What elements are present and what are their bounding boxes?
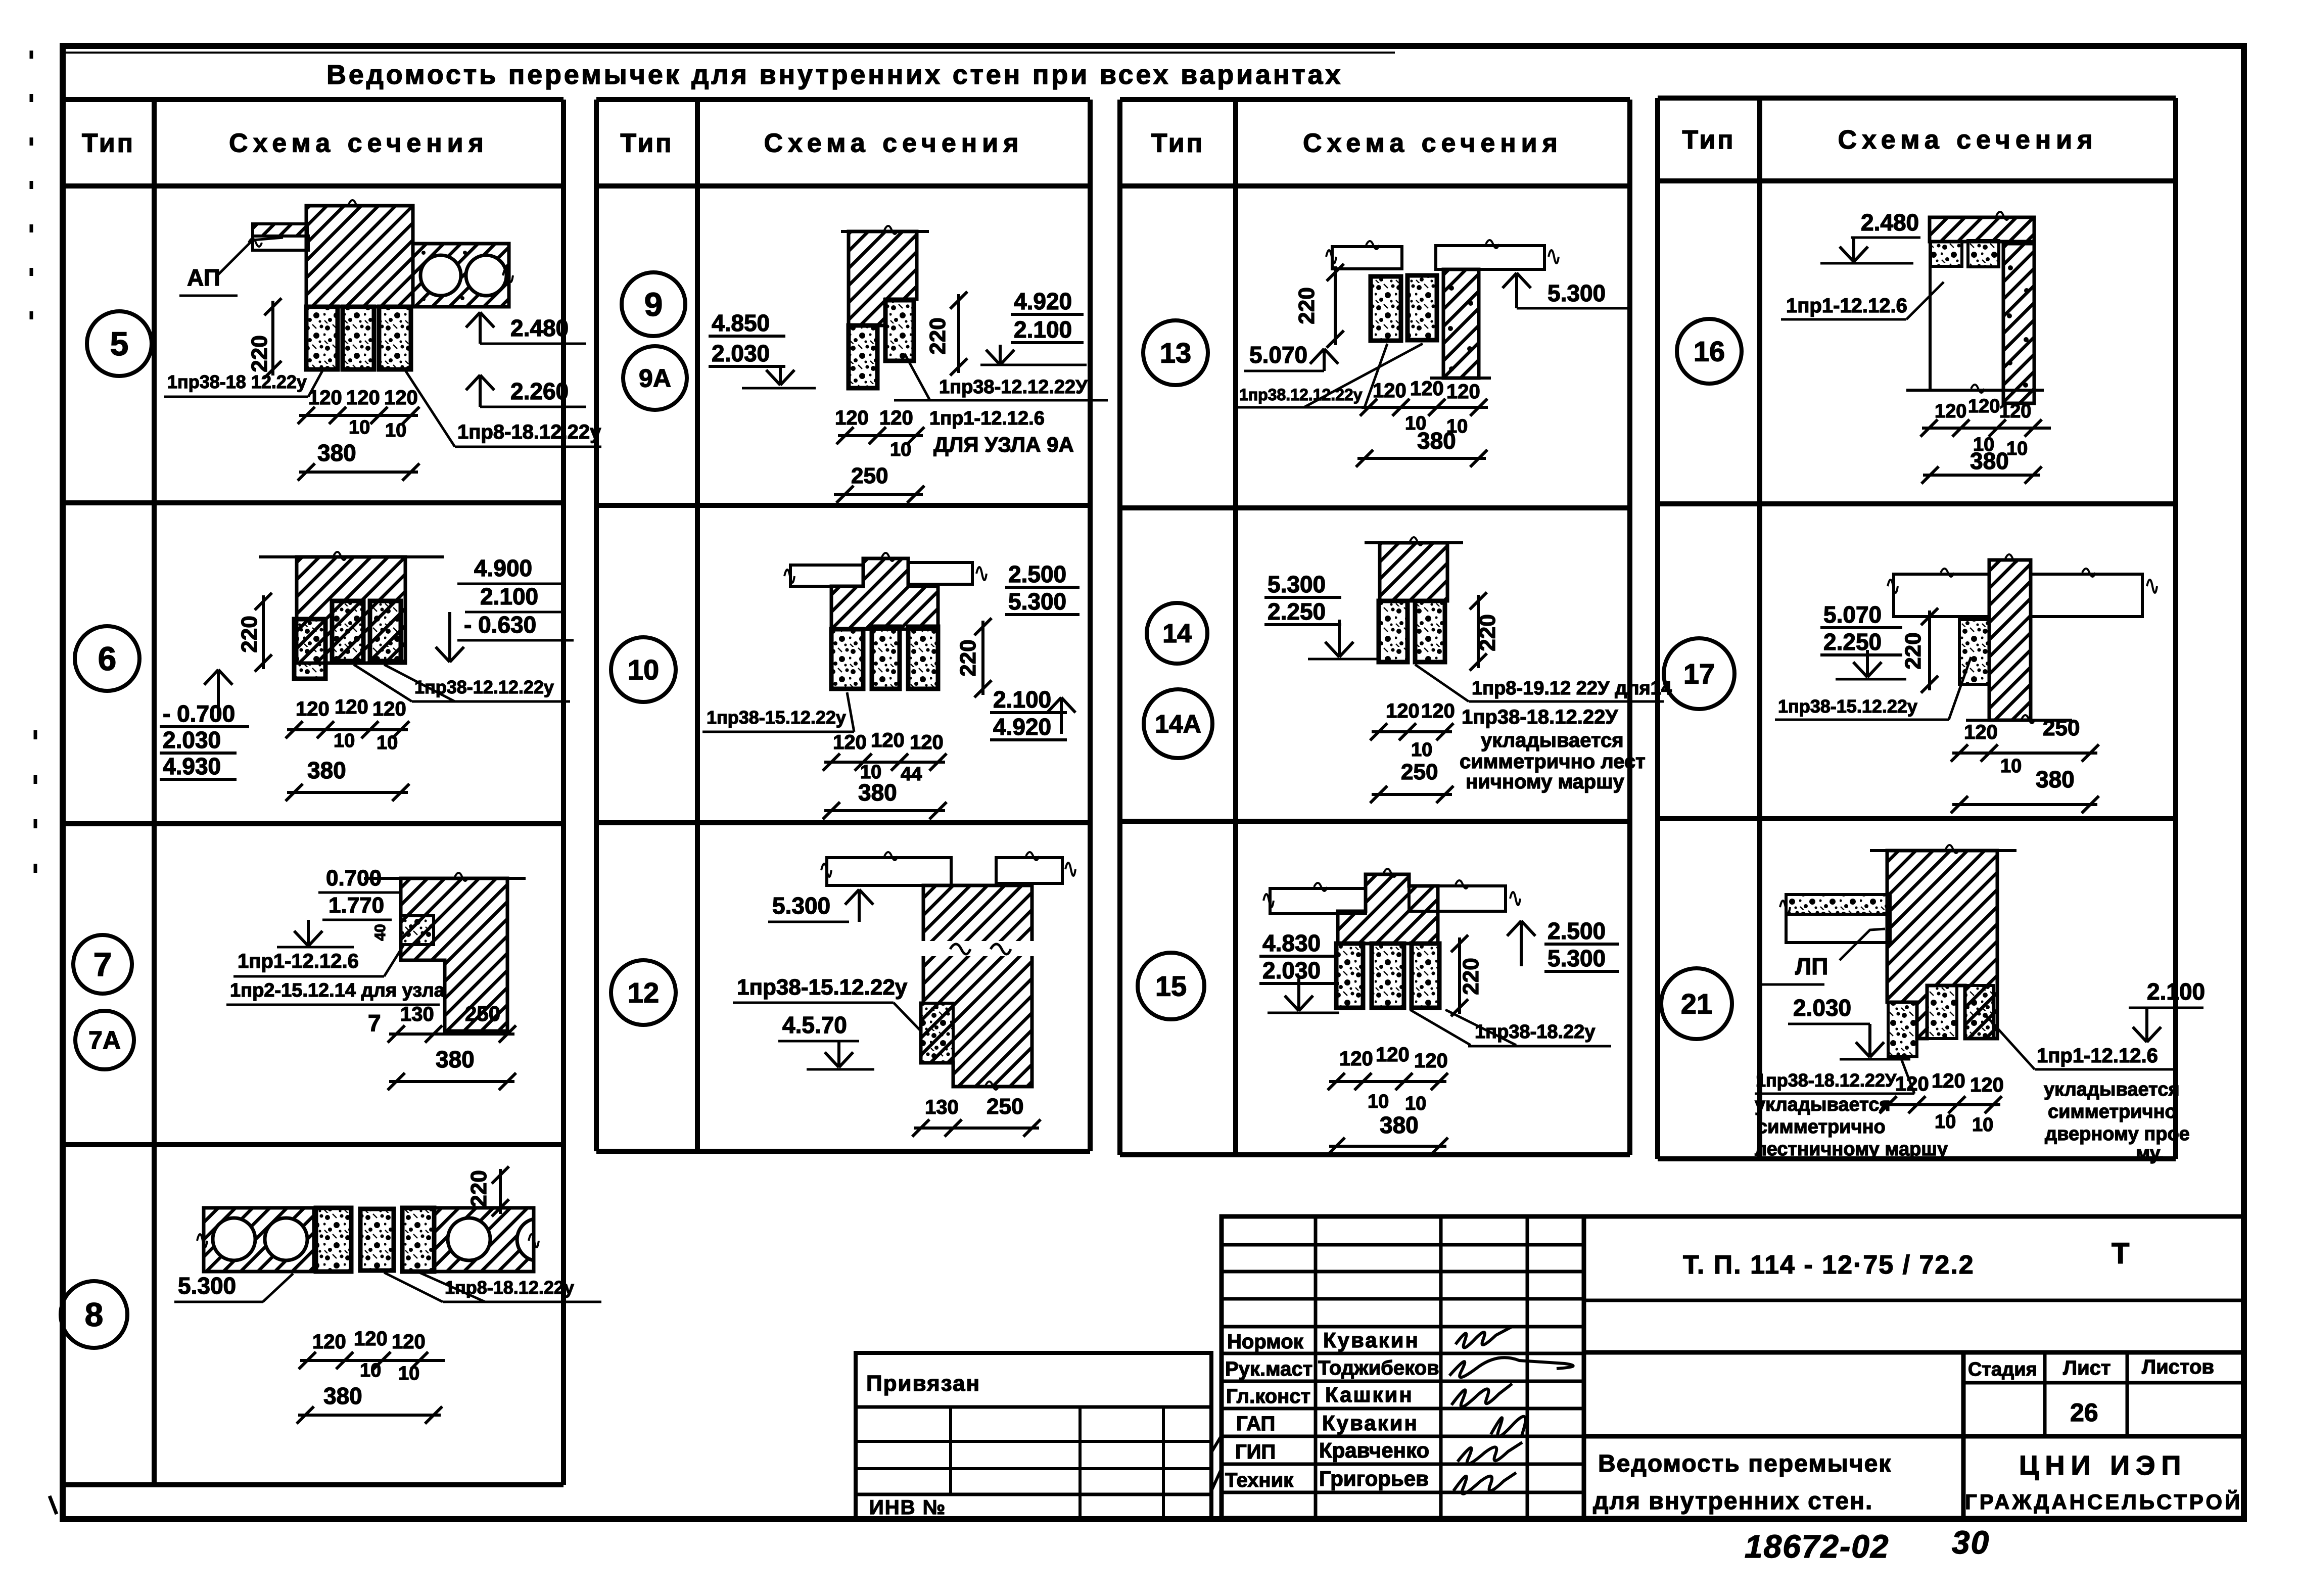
svg-text:380: 380 — [436, 1046, 475, 1072]
svg-text:2.030: 2.030 — [163, 727, 221, 753]
svg-text:120: 120 — [312, 1331, 346, 1353]
svg-text:Кувакин: Кувакин — [1322, 1411, 1419, 1435]
svg-text:укладывается: укладывается — [2044, 1079, 2180, 1100]
svg-text:120: 120 — [1339, 1048, 1373, 1070]
svg-text:10: 10 — [398, 1363, 419, 1384]
svg-text:Тип: Тип — [1682, 125, 1735, 155]
svg-text:Рук.маст: Рук.маст — [1225, 1358, 1312, 1380]
svg-text:ГАП: ГАП — [1236, 1413, 1275, 1435]
svg-text:4.930: 4.930 — [163, 753, 221, 779]
svg-text:120: 120 — [1932, 1070, 1965, 1092]
svg-text:дверному прое: дверному прое — [2045, 1123, 2190, 1145]
svg-text:220: 220 — [1459, 958, 1483, 995]
svg-text:21: 21 — [1681, 988, 1712, 1020]
svg-text:1пр1-12.12.6: 1пр1-12.12.6 — [2037, 1045, 2158, 1067]
svg-text:10: 10 — [2000, 756, 2022, 777]
svg-text:10: 10 — [349, 417, 370, 438]
svg-text:для внутренних стен.: для внутренних стен. — [1593, 1488, 1873, 1515]
svg-text:ГРАЖДАНСЕЛЬСТРОЙ: ГРАЖДАНСЕЛЬСТРОЙ — [1965, 1489, 2242, 1514]
svg-text:укладывается: укладывается — [1481, 729, 1624, 752]
svg-text:- 0.630: - 0.630 — [464, 612, 536, 638]
svg-text:2.250: 2.250 — [1823, 629, 1882, 655]
svg-text:Привязан: Привязан — [866, 1371, 980, 1396]
svg-text:1пр38.12.12.22у: 1пр38.12.12.22у — [1239, 386, 1363, 404]
svg-text:2.480: 2.480 — [510, 315, 569, 341]
svg-text:5.300: 5.300 — [178, 1273, 236, 1299]
svg-text:Гл.конст: Гл.конст — [1226, 1385, 1310, 1407]
svg-text:120: 120 — [346, 387, 380, 409]
svg-text:1пр38-18.12.22У: 1пр38-18.12.22У — [1756, 1070, 1897, 1091]
svg-text:220: 220 — [466, 1170, 491, 1207]
svg-text:лестничному маршу: лестничному маршу — [1755, 1139, 1948, 1160]
svg-text:2.030: 2.030 — [1262, 957, 1321, 983]
svg-text:5.300: 5.300 — [772, 893, 830, 919]
svg-text:2.500: 2.500 — [1547, 918, 1606, 944]
svg-text:250: 250 — [987, 1094, 1023, 1119]
svg-text:120: 120 — [879, 407, 913, 429]
svg-text:250: 250 — [465, 1002, 500, 1025]
svg-text:2.250: 2.250 — [1268, 598, 1326, 625]
svg-text:2.500: 2.500 — [1008, 561, 1066, 587]
svg-text:2.100: 2.100 — [993, 686, 1051, 713]
svg-text:1пр38-12.12.22У: 1пр38-12.12.22У — [939, 377, 1088, 398]
svg-text:5: 5 — [110, 325, 129, 362]
svg-text:380: 380 — [2036, 766, 2075, 792]
svg-text:2.100: 2.100 — [480, 583, 538, 609]
svg-text:Лист: Лист — [2063, 1357, 2111, 1379]
svg-text:380: 380 — [1380, 1112, 1419, 1138]
svg-text:120: 120 — [372, 698, 406, 720]
svg-text:симметрично: симметрично — [2048, 1101, 2177, 1122]
svg-text:120: 120 — [1999, 401, 2031, 422]
svg-text:ДЛЯ УЗЛА 9А: ДЛЯ УЗЛА 9А — [933, 433, 1074, 456]
svg-text:120: 120 — [1410, 378, 1444, 400]
svg-text:10: 10 — [2006, 438, 2028, 459]
svg-text:Т: Т — [2112, 1237, 2129, 1270]
svg-text:ЛП: ЛП — [1795, 953, 1828, 979]
svg-text:2.100: 2.100 — [2147, 978, 2205, 1005]
svg-text:10: 10 — [385, 420, 406, 441]
svg-text:120: 120 — [1376, 1044, 1410, 1066]
svg-text:10: 10 — [377, 732, 398, 754]
svg-text:10: 10 — [890, 439, 911, 460]
svg-text:Ведомость перемычек для внутр: Ведомость перемычек для внутренних стен … — [326, 60, 1343, 90]
svg-text:2.100: 2.100 — [1014, 316, 1072, 343]
svg-text:9: 9 — [644, 286, 663, 323]
svg-text:Листов: Листов — [2142, 1356, 2214, 1378]
svg-text:Схема сечения: Схема сечения — [764, 129, 1024, 158]
svg-text:220: 220 — [1294, 287, 1319, 324]
svg-text:130: 130 — [400, 1003, 434, 1025]
svg-text:- 0.700: - 0.700 — [163, 700, 235, 727]
svg-text:1.770: 1.770 — [329, 893, 384, 918]
svg-text:10: 10 — [1972, 1114, 1993, 1136]
svg-text:АП: АП — [187, 264, 220, 291]
svg-text:симметрично: симметрично — [1757, 1116, 1886, 1138]
svg-text:1пр2-15.12.14 для узла: 1пр2-15.12.14 для узла — [230, 980, 445, 1001]
svg-text:5.300: 5.300 — [1547, 280, 1606, 306]
svg-text:6: 6 — [98, 640, 117, 677]
svg-text:12: 12 — [628, 977, 659, 1009]
svg-text:ЦНИ ИЭП: ЦНИ ИЭП — [2019, 1450, 2187, 1481]
svg-text:1пр8-18.12.22у: 1пр8-18.12.22у — [457, 421, 601, 443]
svg-text:укладывается: укладывается — [1755, 1094, 1891, 1115]
svg-text:250: 250 — [1401, 760, 1438, 784]
svg-text:120: 120 — [1895, 1073, 1929, 1095]
svg-text:380: 380 — [317, 440, 356, 466]
svg-text:1пр38-18.12.22У: 1пр38-18.12.22У — [1462, 706, 1618, 728]
svg-text:120: 120 — [833, 731, 867, 754]
svg-text:120: 120 — [910, 731, 944, 754]
svg-text:симметрично лест: симметрично лест — [1460, 750, 1646, 773]
svg-text:Схема сечения: Схема сечения — [1303, 129, 1563, 158]
svg-text:120: 120 — [392, 1331, 426, 1353]
svg-text:15: 15 — [1155, 970, 1187, 1002]
svg-text:1пр8-19.12 22У для14: 1пр8-19.12 22У для14 — [1472, 678, 1672, 699]
svg-text:26: 26 — [2070, 1398, 2098, 1427]
svg-text:250: 250 — [851, 463, 888, 488]
svg-text:120: 120 — [835, 407, 869, 429]
svg-text:4.830: 4.830 — [1262, 930, 1321, 956]
svg-text:44: 44 — [901, 764, 922, 785]
svg-text:14: 14 — [1162, 619, 1192, 648]
svg-text:8: 8 — [85, 1296, 104, 1333]
svg-text:Тоджибеков: Тоджибеков — [1318, 1357, 1439, 1379]
svg-text:120: 120 — [1386, 700, 1420, 722]
svg-text:16: 16 — [1694, 336, 1725, 367]
svg-text:Григорьев: Григорьев — [1319, 1467, 1429, 1490]
svg-text:Схема сечения: Схема сечения — [1838, 125, 2098, 155]
svg-text:Тип: Тип — [82, 129, 135, 158]
svg-text:220: 220 — [247, 335, 272, 372]
svg-text:1пр38-15.12.22у: 1пр38-15.12.22у — [707, 707, 846, 728]
svg-text:Т. П. 114 - 12·75 / 72.2: Т. П. 114 - 12·75 / 72.2 — [1683, 1250, 1975, 1280]
svg-text:5.070: 5.070 — [1249, 342, 1307, 368]
svg-text:120: 120 — [1414, 1050, 1448, 1072]
svg-text:му.: му. — [2136, 1143, 2164, 1164]
svg-text:120: 120 — [308, 387, 342, 409]
svg-text:380: 380 — [1970, 448, 2009, 474]
svg-text:Кашкин: Кашкин — [1325, 1383, 1414, 1406]
svg-text:ИНВ №: ИНВ № — [869, 1496, 946, 1519]
svg-text:ГИП: ГИП — [1235, 1441, 1276, 1463]
svg-text:5.300: 5.300 — [1268, 571, 1326, 597]
svg-text:17: 17 — [1683, 658, 1715, 690]
svg-text:220: 220 — [925, 317, 950, 354]
svg-text:2.030: 2.030 — [1793, 995, 1851, 1021]
svg-text:1пр38-15.12.22у: 1пр38-15.12.22у — [1778, 696, 1917, 717]
svg-text:10: 10 — [1935, 1111, 1956, 1133]
svg-text:120: 120 — [1421, 700, 1455, 722]
svg-text:14А: 14А — [1155, 710, 1201, 738]
svg-text:5.300: 5.300 — [1008, 588, 1066, 615]
svg-text:120: 120 — [1970, 1074, 2004, 1096]
svg-text:4.920: 4.920 — [1014, 288, 1072, 314]
svg-text:380: 380 — [323, 1383, 362, 1409]
svg-text:10: 10 — [1368, 1091, 1389, 1112]
svg-text:4.5.70: 4.5.70 — [782, 1012, 847, 1038]
svg-text:Стадия: Стадия — [1968, 1359, 2037, 1380]
svg-text:380: 380 — [1417, 428, 1456, 454]
svg-text:1пр38-18.22у: 1пр38-18.22у — [1475, 1021, 1595, 1043]
svg-text:2.030: 2.030 — [712, 340, 770, 366]
svg-text:Нормок: Нормок — [1227, 1331, 1304, 1353]
svg-text:120: 120 — [1373, 380, 1406, 402]
svg-text:220: 220 — [1475, 614, 1500, 651]
svg-text:Техник: Техник — [1225, 1469, 1294, 1491]
svg-text:10: 10 — [1405, 1093, 1426, 1114]
svg-text:120: 120 — [1446, 381, 1480, 403]
svg-text:1пр1-12.12.6: 1пр1-12.12.6 — [929, 408, 1045, 429]
svg-text:9А: 9А — [639, 364, 671, 393]
svg-text:120: 120 — [296, 698, 330, 720]
svg-text:7: 7 — [368, 1010, 381, 1036]
svg-text:1пр8-18.12.22у: 1пр8-18.12.22у — [445, 1277, 574, 1298]
svg-text:380: 380 — [307, 757, 346, 783]
svg-text:7: 7 — [93, 946, 112, 983]
svg-text:120: 120 — [384, 387, 418, 409]
svg-text:1пр38-12.12.22у: 1пр38-12.12.22у — [414, 677, 554, 697]
svg-text:120: 120 — [1964, 721, 1998, 743]
svg-text:Тип: Тип — [1151, 129, 1204, 158]
svg-text:2.480: 2.480 — [1861, 209, 1919, 236]
svg-text:Кравченко: Кравченко — [1319, 1438, 1429, 1462]
svg-text:220: 220 — [956, 639, 980, 676]
svg-text:Тип: Тип — [620, 129, 673, 158]
svg-text:5.070: 5.070 — [1823, 601, 1882, 628]
svg-text:2.260: 2.260 — [510, 378, 569, 404]
svg-text:4.920: 4.920 — [993, 714, 1051, 740]
svg-text:Ведомость перемычек: Ведомость перемычек — [1598, 1450, 1892, 1477]
svg-text:1пр1-12.12.6: 1пр1-12.12.6 — [238, 950, 359, 972]
svg-text:120: 120 — [871, 729, 905, 752]
svg-text:30: 30 — [1952, 1524, 1990, 1561]
svg-text:220: 220 — [1901, 632, 1926, 669]
svg-text:130: 130 — [925, 1096, 959, 1118]
svg-text:40: 40 — [372, 924, 389, 941]
svg-text:5.300: 5.300 — [1547, 945, 1606, 971]
svg-text:4.850: 4.850 — [712, 310, 770, 336]
svg-text:Схема сечения: Схема сечения — [229, 129, 489, 158]
svg-text:1пр38-18 12.22у: 1пр38-18 12.22у — [167, 371, 307, 392]
svg-text:120: 120 — [335, 696, 368, 718]
svg-text:250: 250 — [2043, 716, 2080, 740]
svg-text:18672-02: 18672-02 — [1745, 1528, 1889, 1565]
svg-text:220: 220 — [237, 616, 262, 652]
svg-text:4.900: 4.900 — [474, 555, 532, 581]
svg-text:1пр38-15.12.22у: 1пр38-15.12.22у — [737, 975, 908, 1000]
svg-text:10: 10 — [628, 654, 659, 686]
svg-text:Кувакин: Кувакин — [1323, 1328, 1420, 1352]
svg-text:120: 120 — [1968, 396, 2000, 417]
svg-text:120: 120 — [1935, 401, 1966, 422]
svg-text:380: 380 — [858, 779, 897, 806]
svg-text:10: 10 — [334, 730, 355, 752]
svg-text:10: 10 — [1411, 739, 1432, 761]
svg-text:1пр1-12.12.6: 1пр1-12.12.6 — [1786, 295, 1907, 317]
svg-text:120: 120 — [354, 1328, 388, 1350]
svg-text:7А: 7А — [88, 1026, 121, 1055]
svg-text:13: 13 — [1160, 337, 1191, 369]
svg-text:10: 10 — [360, 1360, 381, 1381]
svg-text:ничному маршу: ничному маршу — [1466, 771, 1625, 793]
